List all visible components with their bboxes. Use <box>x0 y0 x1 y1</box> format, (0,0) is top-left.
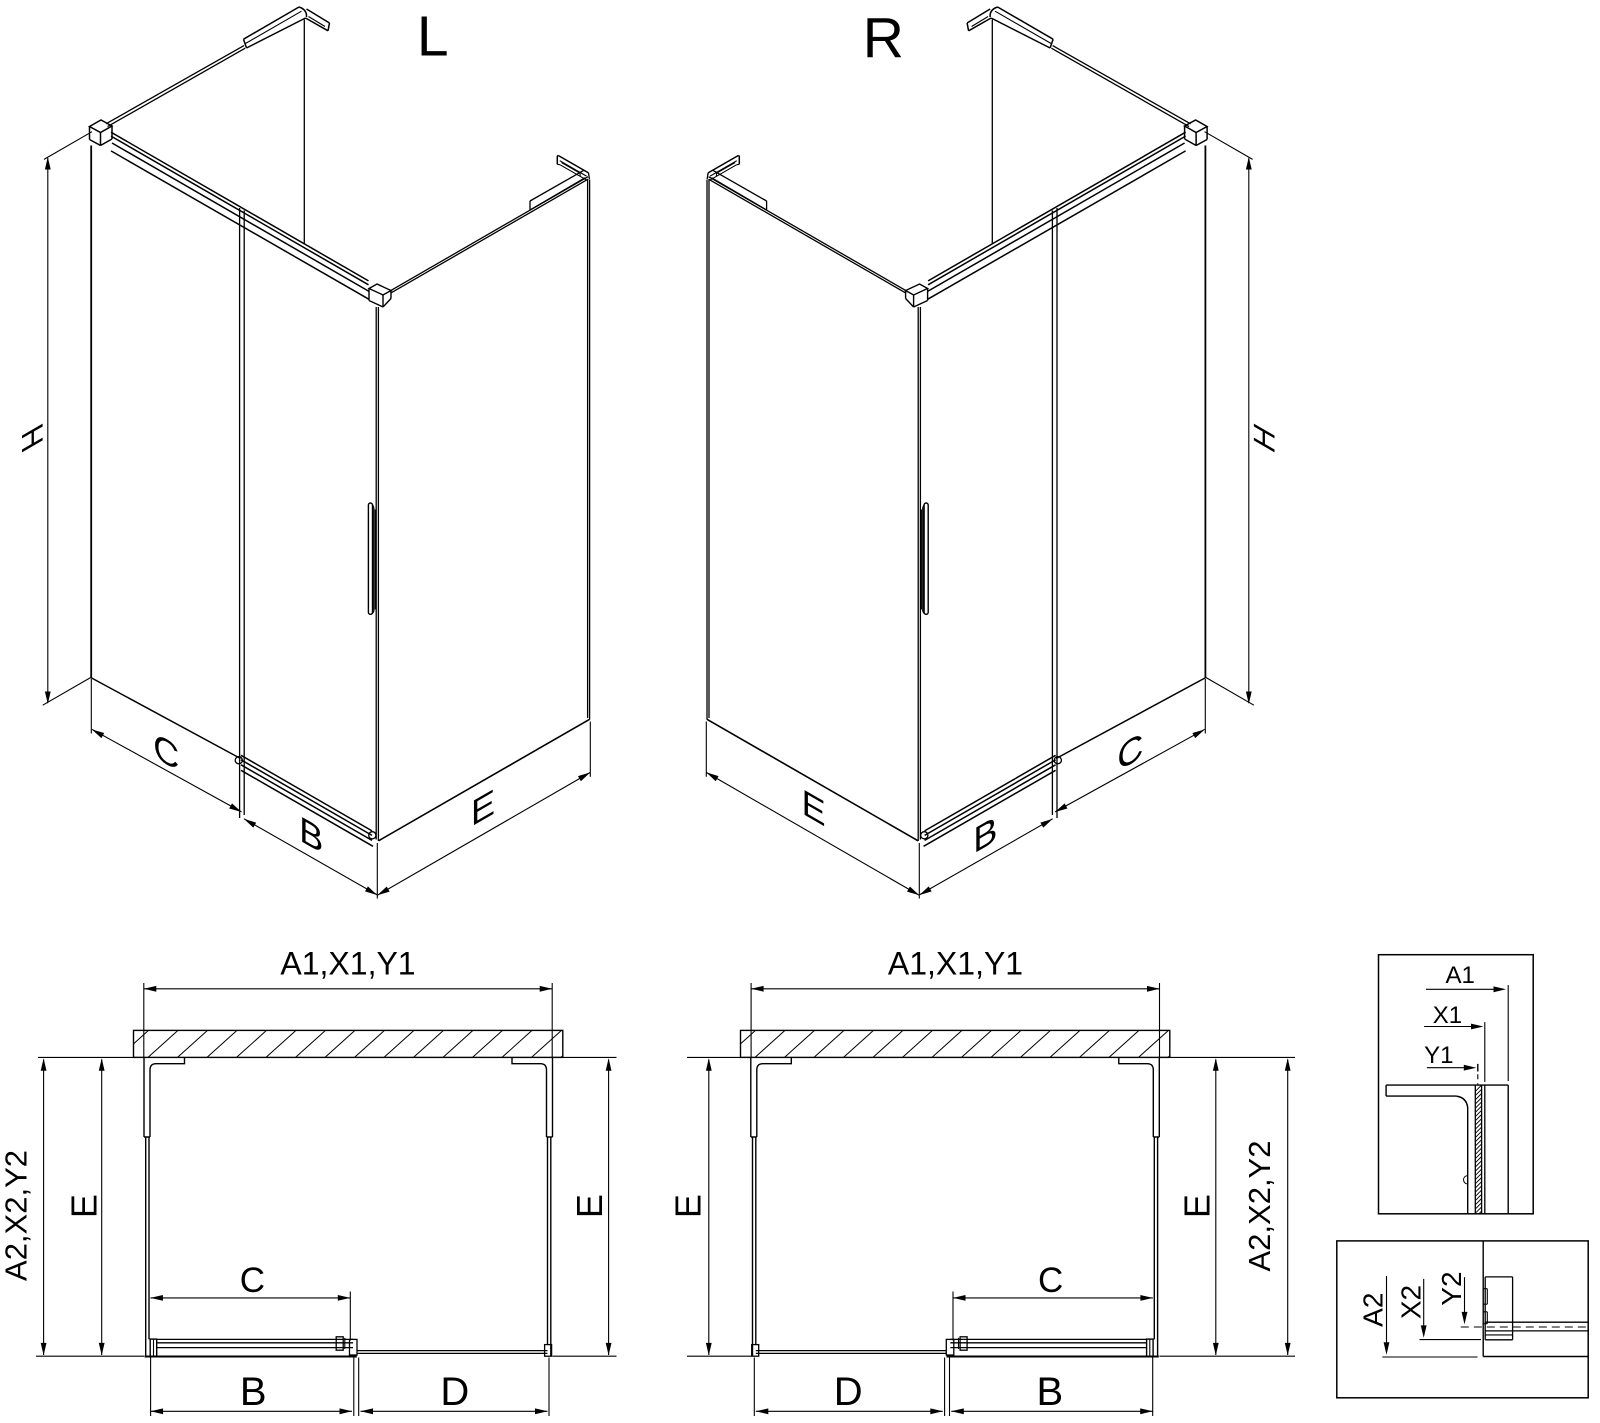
svg-text:C: C <box>1038 1261 1063 1300</box>
svg-text:E: E <box>1177 1194 1218 1218</box>
svg-text:L: L <box>417 5 449 69</box>
svg-text:C: C <box>240 1261 265 1300</box>
svg-text:R: R <box>863 6 904 70</box>
svg-text:X1: X1 <box>1433 1002 1462 1029</box>
svg-text:B: B <box>240 1370 267 1414</box>
svg-text:B: B <box>1036 1370 1063 1414</box>
svg-text:A2: A2 <box>1357 1293 1388 1327</box>
svg-text:A2,X2,Y2: A2,X2,Y2 <box>0 1150 34 1281</box>
svg-text:A2,X2,Y2: A2,X2,Y2 <box>1242 1141 1277 1272</box>
svg-text:D: D <box>834 1370 863 1414</box>
svg-text:E: E <box>569 1194 610 1218</box>
svg-text:D: D <box>440 1370 469 1414</box>
svg-text:X2: X2 <box>1395 1285 1426 1319</box>
svg-text:E: E <box>667 1194 708 1218</box>
svg-text:Y2: Y2 <box>1436 1271 1467 1305</box>
svg-text:A1,X1,Y1: A1,X1,Y1 <box>888 946 1023 982</box>
svg-text:Y1: Y1 <box>1424 1042 1453 1069</box>
svg-text:A1: A1 <box>1446 962 1475 989</box>
svg-text:E: E <box>63 1194 104 1218</box>
svg-text:A1,X1,Y1: A1,X1,Y1 <box>280 946 415 982</box>
